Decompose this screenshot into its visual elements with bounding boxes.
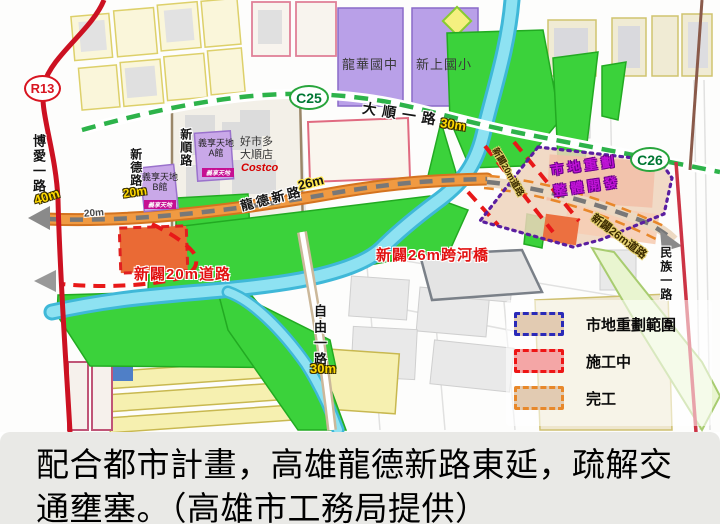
map-legend: 市地重劃範圍 施工中 完工 [506,300,712,426]
legend-row-completed: 完工 [514,384,704,412]
place-label-costco1: 好市多 [240,136,273,149]
road-width-ziyou: 30m [310,362,336,377]
label-new-26m-bridge: 新闢26m跨河橋 [376,247,489,264]
place-label-costco2: 大順店 [240,149,273,162]
yixiang-b-logo: 義享天地 [144,200,176,209]
legend-swatch-construction [514,349,564,373]
place-label-school-west: 龍華國中 [342,58,398,73]
legend-label-construction: 施工中 [586,351,631,372]
place-label-yixiang-a: 義享天地 A館 [198,138,234,159]
road-label-xinde: 新德路 [128,148,142,187]
yixiang-a-line1: 義享天地 [198,138,234,148]
metro-station-badge: R13 [24,75,61,102]
lrt-station-c25-badge: C25 [289,85,329,110]
block-east-of-costco [308,118,410,182]
caption-line1: 配合都市計畫，高雄龍德新路東延，疏解交 [36,443,690,487]
place-label-yixiang-b: 義享天地 B館 [142,172,178,193]
yixiang-b-line1: 義享天地 [142,172,178,182]
costco-logo: Costco [241,162,278,175]
photo-caption: 配合都市計畫，高雄龍德新路東延，疏解交 通壅塞。（高雄市工務局提供） [0,432,720,524]
lrt-station-c26-badge: C26 [630,147,670,172]
yixiang-a-line2: A館 [198,148,234,158]
legend-swatch-zone [514,312,564,336]
road-width-longde-west: 20m [84,207,105,220]
road-label-boai: 博愛一路 [30,134,45,194]
legend-swatch-completed [514,386,564,410]
yixiang-a-logo: 義享天地 [202,168,234,177]
legend-label-zone: 市地重劃範圍 [586,314,676,335]
label-new-20m-road: 新闢20m道路 [134,266,231,283]
road-label-ziyou: 自由一路 [311,304,326,368]
road-label-minzu: 民族一路 [658,246,672,302]
legend-label-completed: 完工 [586,388,616,409]
urban-plan-map: R13 C25 C26 博愛一路 40m 新德路 20m 新順路 大順一路 30… [0,0,720,432]
legend-row-zone: 市地重劃範圍 [514,310,704,338]
news-photo-map: R13 C25 C26 博愛一路 40m 新德路 20m 新順路 大順一路 30… [0,0,720,524]
place-label-school-east: 新上國小 [416,58,472,73]
road-label-xinshun: 新順路 [178,128,192,167]
caption-line2: 通壅塞。（高雄市工務局提供） [36,487,690,524]
legend-row-construction: 施工中 [514,347,704,375]
yixiang-b-line2: B館 [142,182,178,192]
